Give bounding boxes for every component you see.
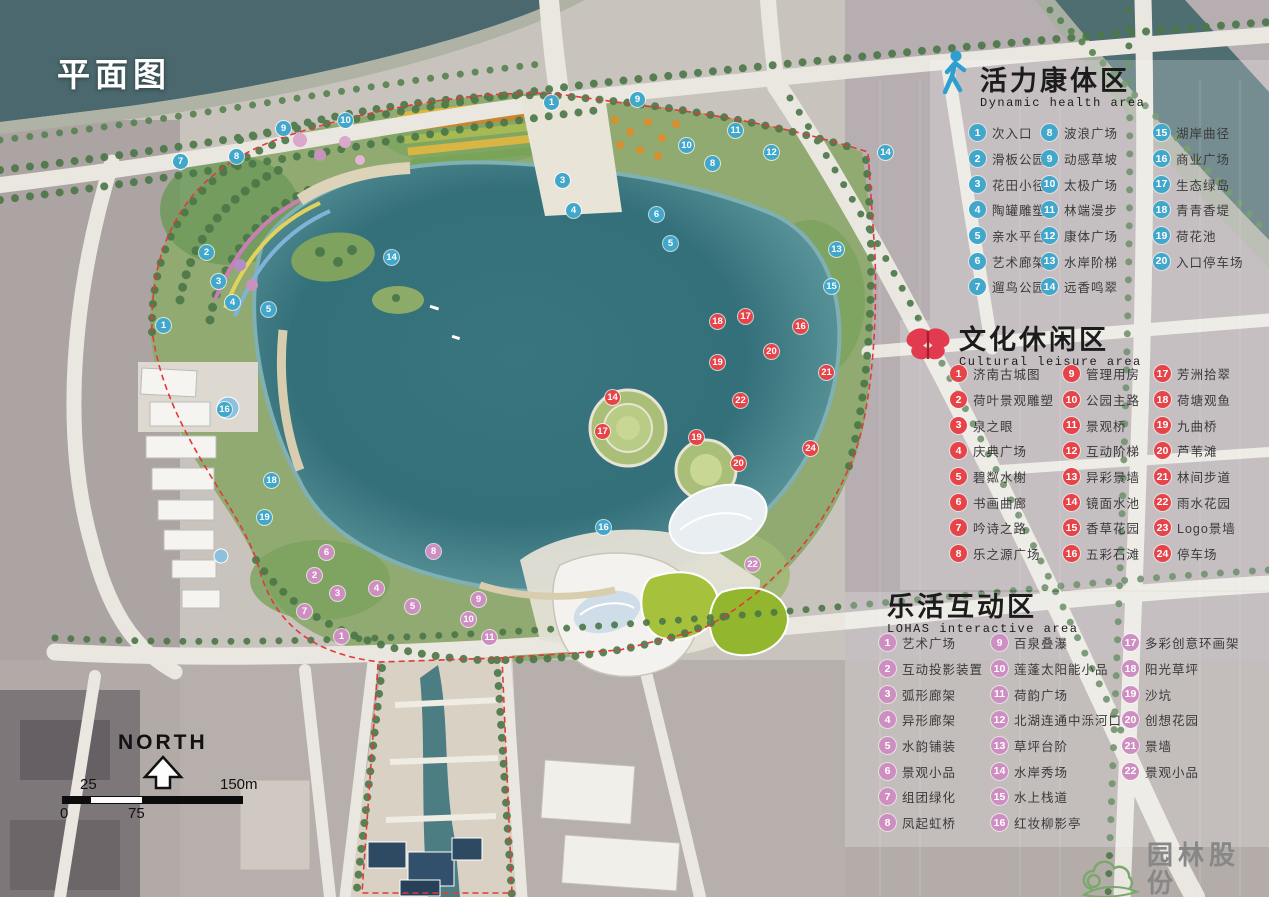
scale-labels-top: 25 150m: [62, 776, 262, 794]
legend-item-label: 水岸秀场: [1014, 762, 1068, 781]
legend-item-label: 异形廊架: [902, 710, 956, 729]
legend-item-label: 组团绿化: [902, 787, 956, 806]
legend-item-label: 百泉叠瀑: [1014, 633, 1068, 652]
legend-item-list: 1次入口2滑板公园3花田小径4陶罐雕塑5亲水平台6艺术廊架7遛鸟公园8波浪广场9…: [969, 120, 1269, 300]
legend-item-label: 陶罐雕塑: [992, 200, 1046, 219]
legend-item-label: 湖岸曲径: [1176, 123, 1230, 142]
legend-item: 19荷花池: [1153, 223, 1269, 249]
map-marker: 6: [649, 207, 664, 222]
legend-item: 15湖岸曲径: [1153, 120, 1269, 146]
legend-item-label: 芳洲拾翠: [1177, 364, 1231, 383]
legend-item-label: 荷塘观鱼: [1177, 390, 1231, 409]
legend-item: 16商业广场: [1153, 146, 1269, 172]
map-marker: 11: [482, 630, 497, 645]
legend-item-number-badge: 13: [1063, 468, 1080, 485]
map-marker: 11: [728, 123, 743, 138]
legend-item: 12互动阶梯: [1063, 438, 1154, 464]
map-marker: 19: [689, 430, 704, 445]
legend-column: 1次入口2滑板公园3花田小径4陶罐雕塑5亲水平台6艺术廊架7遛鸟公园: [969, 120, 1041, 300]
map-marker: 19: [257, 510, 272, 525]
map-marker: 14: [605, 390, 620, 405]
legend-item-number-badge: 11: [1063, 417, 1080, 434]
map-marker: 7: [297, 604, 312, 619]
legend-item-number-badge: 14: [991, 763, 1008, 780]
legend-item: 19九曲桥: [1154, 412, 1264, 438]
legend-item-label: 庆典广场: [973, 441, 1027, 460]
page-title: 平面图: [57, 48, 171, 96]
legend-item: 1艺术广场: [879, 630, 991, 656]
legend-item-number-badge: 5: [950, 468, 967, 485]
legend-item-label: 雨水花园: [1177, 493, 1231, 512]
legend-item: 21景墙: [1122, 733, 1269, 759]
legend-item-label: 荷韵广场: [1014, 685, 1068, 704]
legend-title-zh: 活力康体区: [980, 66, 1145, 96]
legend-item-number-badge: 22: [1122, 763, 1139, 780]
map-marker: 17: [595, 424, 610, 439]
legend-item-list: 1济南古城图2荷叶景观雕塑3泉之眼4庆典广场5碧粼水榭6书画曲廊7吟诗之路8乐之…: [950, 361, 1264, 567]
legend-item: 1济南古城图: [950, 361, 1063, 387]
legend-item: 4庆典广场: [950, 438, 1063, 464]
legend-item-label: 异彩景墙: [1086, 467, 1140, 486]
legend-item: 20芦苇滩: [1154, 438, 1264, 464]
scale-label-75: 75: [128, 805, 145, 822]
map-marker: 17: [738, 309, 753, 324]
legend-item-number-badge: 21: [1154, 468, 1171, 485]
legend-item-label: 停车场: [1177, 544, 1218, 563]
legend-item-number-badge: 14: [1041, 278, 1058, 295]
legend-item-number-badge: 17: [1122, 634, 1139, 651]
legend-item: 24停车场: [1154, 541, 1264, 567]
scale-labels-bottom: 0 75: [62, 805, 262, 823]
legend-item-number-badge: 12: [991, 711, 1008, 728]
legend-item: 5水韵铺装: [879, 733, 991, 759]
legend-item-label: 遛鸟公园: [992, 277, 1046, 296]
legend-item-label: 芦苇滩: [1177, 441, 1218, 460]
legend-item: 17生态绿岛: [1153, 171, 1269, 197]
logo-name: 园林股份: [1147, 841, 1269, 897]
legend-item: 15水上栈道: [991, 784, 1122, 810]
scale-label-0: 0: [60, 805, 68, 822]
map-marker: 16: [793, 319, 808, 334]
legend-item: 4陶罐雕塑: [969, 197, 1041, 223]
legend-item: 14水岸秀场: [991, 758, 1122, 784]
legend-item-number-badge: 1: [950, 365, 967, 382]
legend-item-label: 香草花园: [1086, 518, 1140, 537]
legend-item: 11荷韵广场: [991, 681, 1122, 707]
legend-item-number-badge: 11: [991, 686, 1008, 703]
legend-item-number-badge: 18: [1122, 660, 1139, 677]
legend-item-number-badge: 12: [1041, 227, 1058, 244]
legend-item: 10莲蓬太阳能小品: [991, 656, 1122, 682]
legend-item-label: 红妆柳影亭: [1014, 813, 1082, 832]
map-marker: 20: [764, 344, 779, 359]
legend-item-number-badge: 6: [950, 494, 967, 511]
legend-item-number-badge: 6: [879, 763, 896, 780]
legend-item-number-badge: 4: [879, 711, 896, 728]
legend-item-number-badge: 13: [1041, 253, 1058, 270]
scale-label-25: 25: [80, 776, 97, 793]
legend-item: 20入口停车场: [1153, 248, 1269, 274]
legend-item-label: 九曲桥: [1177, 416, 1218, 435]
legend-item-label: 水韵铺装: [902, 736, 956, 755]
legend-item-number-badge: 2: [950, 391, 967, 408]
legend-item-number-badge: 23: [1154, 519, 1171, 536]
legend-item-label: 林端漫步: [1064, 200, 1118, 219]
legend-item: 19沙坑: [1122, 681, 1269, 707]
legend-item-number-badge: 20: [1153, 253, 1170, 270]
legend-item: 6景观小品: [879, 758, 991, 784]
legend-item: 12康体广场: [1041, 223, 1153, 249]
legend-item-label: Logo景墙: [1177, 518, 1236, 537]
map-marker: 3: [211, 274, 226, 289]
legend-item-number-badge: 13: [991, 737, 1008, 754]
legend-item-label: 公园主路: [1086, 390, 1140, 409]
legend-column: 9百泉叠瀑10莲蓬太阳能小品11荷韵广场12北湖连通中泺河口13草坪台阶14水岸…: [991, 630, 1122, 836]
legend-item: 13异彩景墙: [1063, 464, 1154, 490]
legend-item-label: 远香鸣翠: [1064, 277, 1118, 296]
legend-item: 10太极广场: [1041, 171, 1153, 197]
map-marker: 19: [710, 355, 725, 370]
legend-item-label: 商业广场: [1176, 149, 1230, 168]
legend-column: 8波浪广场9动感草坡10太极广场11林端漫步12康体广场13水岸阶梯14远香鸣翠: [1041, 120, 1153, 300]
legend-item: 7吟诗之路: [950, 515, 1063, 541]
legend-item: 8凤起虹桥: [879, 810, 991, 836]
legend-item: 7遛鸟公园: [969, 274, 1041, 300]
legend-item: 17多彩创意环画架: [1122, 630, 1269, 656]
legend-item-label: 互动投影装置: [902, 659, 983, 678]
legend-item: 6书画曲廊: [950, 489, 1063, 515]
legend-item-label: 碧粼水榭: [973, 467, 1027, 486]
legend-item-label: 水上栈道: [1014, 787, 1068, 806]
map-marker: 9: [471, 592, 486, 607]
legend-item-number-badge: 8: [879, 814, 896, 831]
legend-item-number-badge: 19: [1122, 686, 1139, 703]
legend-item-label: 创想花园: [1145, 710, 1199, 729]
map-marker: 10: [461, 612, 476, 627]
legend-item-number-badge: 8: [1041, 124, 1058, 141]
legend-column: 1艺术广场2互动投影装置3弧形廊架4异形廊架5水韵铺装6景观小品7组团绿化8凤起…: [879, 630, 991, 836]
legend-item-number-badge: 16: [1153, 150, 1170, 167]
legend-item-number-badge: 6: [969, 253, 986, 270]
legend-item-number-badge: 22: [1154, 494, 1171, 511]
legend-item: 9动感草坡: [1041, 146, 1153, 172]
legend-item: 2互动投影装置: [879, 656, 991, 682]
legend-item-label: 沙坑: [1145, 685, 1172, 704]
legend-item-label: 太极广场: [1064, 175, 1118, 194]
legend-item-number-badge: 5: [879, 737, 896, 754]
legend-item-number-badge: 1: [879, 634, 896, 651]
legend-item-label: 波浪广场: [1064, 123, 1118, 142]
legend-item: 13水岸阶梯: [1041, 248, 1153, 274]
legend-item-label: 书画曲廊: [973, 493, 1027, 512]
scale-bar: 25 150m 0 75: [62, 776, 262, 823]
legend-item-label: 镜面水池: [1086, 493, 1140, 512]
map-marker: 15: [824, 279, 839, 294]
map-marker: 5: [663, 236, 678, 251]
legend-item-number-badge: 10: [1063, 391, 1080, 408]
legend-item-label: 泉之眼: [973, 416, 1014, 435]
map-marker: 3: [555, 173, 570, 188]
legend-column: 9管理用房10公园主路11景观桥12互动阶梯13异彩景墙14镜面水池15香草花园…: [1063, 361, 1154, 567]
legend-item-number-badge: 3: [969, 176, 986, 193]
legend-item-label: 次入口: [992, 123, 1033, 142]
legend-item: 16红妆柳影亭: [991, 810, 1122, 836]
legend-item-label: 吟诗之路: [973, 518, 1027, 537]
legend-item: 5碧粼水榭: [950, 464, 1063, 490]
north-label: NORTH: [118, 731, 208, 755]
map-marker: 14: [878, 145, 893, 160]
map-marker: 9: [630, 92, 645, 107]
scale-segment: [62, 796, 90, 804]
legend-item-label: 景墙: [1145, 736, 1172, 755]
legend-item-label: 景观桥: [1086, 416, 1127, 435]
legend-item-number-badge: 19: [1153, 227, 1170, 244]
legend-item-label: 动感草坡: [1064, 149, 1118, 168]
legend-item-number-badge: 16: [991, 814, 1008, 831]
legend-item: 8波浪广场: [1041, 120, 1153, 146]
legend-item-label: 弧形廊架: [902, 685, 956, 704]
map-marker: 20: [731, 456, 746, 471]
map-marker: 8: [229, 149, 244, 164]
map-marker: 4: [225, 295, 240, 310]
legend-item: 3花田小径: [969, 171, 1041, 197]
legend-item: 7组团绿化: [879, 784, 991, 810]
legend-item-label: 青青香堤: [1176, 200, 1230, 219]
legend-item-number-badge: 7: [950, 519, 967, 536]
map-marker: 10: [338, 113, 353, 128]
legend-item: 8乐之源广场: [950, 541, 1063, 567]
legend-item: 10公园主路: [1063, 387, 1154, 413]
legend-item-number-badge: 20: [1154, 442, 1171, 459]
legend-item: 4异形廊架: [879, 707, 991, 733]
legend-title-zh: 乐活互动区: [887, 592, 1078, 622]
legend-item-label: 阳光草坪: [1145, 659, 1199, 678]
legend-item: 12北湖连通中泺河口: [991, 707, 1122, 733]
legend-item-number-badge: 12: [1063, 442, 1080, 459]
legend-item-label: 济南古城图: [973, 364, 1041, 383]
legend-item: 21林间步道: [1154, 464, 1264, 490]
legend-item-label: 艺术廊架: [992, 252, 1046, 271]
legend-item-list: 1艺术广场2互动投影装置3弧形廊架4异形廊架5水韵铺装6景观小品7组团绿化8凤起…: [879, 630, 1269, 836]
legend-item: 11景观桥: [1063, 412, 1154, 438]
legend-item-label: 景观小品: [902, 762, 956, 781]
legend-item-number-badge: 7: [879, 788, 896, 805]
scale-bar-segments: [62, 796, 243, 804]
legend-item-number-badge: 8: [950, 545, 967, 562]
legend-item: 2滑板公园: [969, 146, 1041, 172]
scale-label-150m: 150m: [220, 776, 258, 793]
legend-item: 22景观小品: [1122, 758, 1269, 784]
legend-item-label: 管理用房: [1086, 364, 1140, 383]
legend-item-label: 林间步道: [1177, 467, 1231, 486]
map-marker: 1: [544, 95, 559, 110]
walking-person-icon: [938, 48, 972, 102]
legend-item-label: 莲蓬太阳能小品: [1014, 659, 1109, 678]
map-marker: 8: [705, 156, 720, 171]
legend-column: 1济南古城图2荷叶景观雕塑3泉之眼4庆典广场5碧粼水榭6书画曲廊7吟诗之路8乐之…: [950, 361, 1063, 567]
map-marker: 6: [319, 545, 334, 560]
legend-item-label: 多彩创意环画架: [1145, 633, 1240, 652]
map-marker: 24: [803, 441, 818, 456]
legend-item: 20创想花园: [1122, 707, 1269, 733]
legend-item: 16五彩石滩: [1063, 541, 1154, 567]
map-marker: 4: [566, 203, 581, 218]
map-marker: 4: [369, 581, 384, 596]
map-marker: 1: [156, 318, 171, 333]
legend-item: 13草坪台阶: [991, 733, 1122, 759]
legend-item-label: 水岸阶梯: [1064, 252, 1118, 271]
map-marker: 14: [384, 250, 399, 265]
legend-item-number-badge: 17: [1154, 365, 1171, 382]
map-marker: 9: [276, 121, 291, 136]
map-marker: 2: [199, 245, 214, 260]
legend-item: 18青青香堤: [1153, 197, 1269, 223]
legend-item: 3泉之眼: [950, 412, 1063, 438]
map-marker: 13: [829, 242, 844, 257]
map-marker: 16: [596, 520, 611, 535]
legend-item-label: 康体广场: [1064, 226, 1118, 245]
legend-item: 9百泉叠瀑: [991, 630, 1122, 656]
garden-cloud-icon: [1078, 855, 1141, 897]
legend-item: 3弧形廊架: [879, 681, 991, 707]
legend-item-number-badge: 17: [1153, 176, 1170, 193]
map-marker: 8: [426, 544, 441, 559]
legend-item-label: 荷叶景观雕塑: [973, 390, 1054, 409]
legend-item: 11林端漫步: [1041, 197, 1153, 223]
legend-item-number-badge: 9: [991, 634, 1008, 651]
map-marker: 2: [307, 568, 322, 583]
legend-item-number-badge: 10: [991, 660, 1008, 677]
legend-column: 15湖岸曲径16商业广场17生态绿岛18青青香堤19荷花池20入口停车场: [1153, 120, 1269, 274]
legend-column: 17多彩创意环画架18阳光草坪19沙坑20创想花园21景墙22景观小品: [1122, 630, 1269, 784]
legend-item-label: 花田小径: [992, 175, 1046, 194]
legend-item-number-badge: 4: [969, 201, 986, 218]
legend-item: 14镜面水池: [1063, 489, 1154, 515]
legend-item-number-badge: 19: [1154, 417, 1171, 434]
scale-segment: [143, 796, 243, 804]
legend-item-number-badge: 9: [1063, 365, 1080, 382]
legend-item-label: 景观小品: [1145, 762, 1199, 781]
legend-item-label: 北湖连通中泺河口: [1014, 710, 1122, 729]
legend-column: 17芳洲拾翠18荷塘观鱼19九曲桥20芦苇滩21林间步道22雨水花园23Logo…: [1154, 361, 1264, 567]
legend-item-number-badge: 1: [969, 124, 986, 141]
map-marker: 18: [264, 473, 279, 488]
map-marker: 22: [745, 557, 760, 572]
legend-item-label: 入口停车场: [1176, 252, 1244, 271]
legend-item: 14远香鸣翠: [1041, 274, 1153, 300]
legend-item: 17芳洲拾翠: [1154, 361, 1264, 387]
legend-item-number-badge: 11: [1041, 201, 1058, 218]
legend-item-number-badge: 14: [1063, 494, 1080, 511]
legend-header: 活力康体区 Dynamic health area: [938, 66, 1145, 111]
legend-item: 5亲水平台: [969, 223, 1041, 249]
map-marker: 5: [261, 302, 276, 317]
legend-item-label: 艺术广场: [902, 633, 956, 652]
legend-item-label: 滑板公园: [992, 149, 1046, 168]
legend-item-number-badge: 10: [1041, 176, 1058, 193]
legend-item-number-badge: 24: [1154, 545, 1171, 562]
legend-item-number-badge: 7: [969, 278, 986, 295]
legend-item-number-badge: 21: [1122, 737, 1139, 754]
legend-item-number-badge: 15: [991, 788, 1008, 805]
legend-item-number-badge: 2: [879, 660, 896, 677]
legend-item-number-badge: 3: [879, 686, 896, 703]
legend-item: 2荷叶景观雕塑: [950, 387, 1063, 413]
legend-item-number-badge: 15: [1063, 519, 1080, 536]
site-plan-screenshot: 平面图 活力康体区 Dynamic health area 1次入口2滑板公园3…: [0, 0, 1269, 897]
legend-item: 18阳光草坪: [1122, 656, 1269, 682]
legend-item-number-badge: 5: [969, 227, 986, 244]
legend-title-zh: 文化休闲区: [959, 325, 1142, 355]
legend-item: 6艺术廊架: [969, 248, 1041, 274]
map-marker: 3: [330, 586, 345, 601]
legend-item-number-badge: 20: [1122, 711, 1139, 728]
legend-item-label: 凤起虹桥: [902, 813, 956, 832]
legend-item: 1次入口: [969, 120, 1041, 146]
map-marker: 10: [679, 138, 694, 153]
legend-item: 15香草花园: [1063, 515, 1154, 541]
legend-title-en: Dynamic health area: [980, 96, 1145, 111]
legend-item-label: 互动阶梯: [1086, 441, 1140, 460]
legend-item-label: 亲水平台: [992, 226, 1046, 245]
map-marker: 12: [764, 145, 779, 160]
legend-item-label: 乐之源广场: [973, 544, 1041, 563]
legend-item-number-badge: 15: [1153, 124, 1170, 141]
legend-item-label: 草坪台阶: [1014, 736, 1068, 755]
legend-item: 9管理用房: [1063, 361, 1154, 387]
legend-item-number-badge: 9: [1041, 150, 1058, 167]
legend-item-label: 五彩石滩: [1086, 544, 1140, 563]
map-marker: 16: [217, 402, 232, 417]
map-marker: 22: [733, 393, 748, 408]
map-marker: 1: [334, 629, 349, 644]
legend-item: 22雨水花园: [1154, 489, 1264, 515]
butterfly-icon: [905, 325, 951, 365]
legend-item: 18荷塘观鱼: [1154, 387, 1264, 413]
legend-item-number-badge: 18: [1153, 201, 1170, 218]
map-marker: 18: [710, 314, 725, 329]
legend-item: 23Logo景墙: [1154, 515, 1264, 541]
crescent-moon-icon: [845, 594, 879, 632]
legend-item-label: 生态绿岛: [1176, 175, 1230, 194]
scale-segment: [90, 796, 143, 804]
legend-item-label: 荷花池: [1176, 226, 1217, 245]
legend-item-number-badge: 16: [1063, 545, 1080, 562]
legend-item-number-badge: 3: [950, 417, 967, 434]
company-logo: 园林股份 股票代码:605303: [1078, 841, 1269, 897]
map-marker: 5: [405, 599, 420, 614]
legend-item-number-badge: 18: [1154, 391, 1171, 408]
map-marker: 21: [819, 365, 834, 380]
legend-item-number-badge: 2: [969, 150, 986, 167]
map-marker: 7: [173, 154, 188, 169]
legend-item-number-badge: 4: [950, 442, 967, 459]
